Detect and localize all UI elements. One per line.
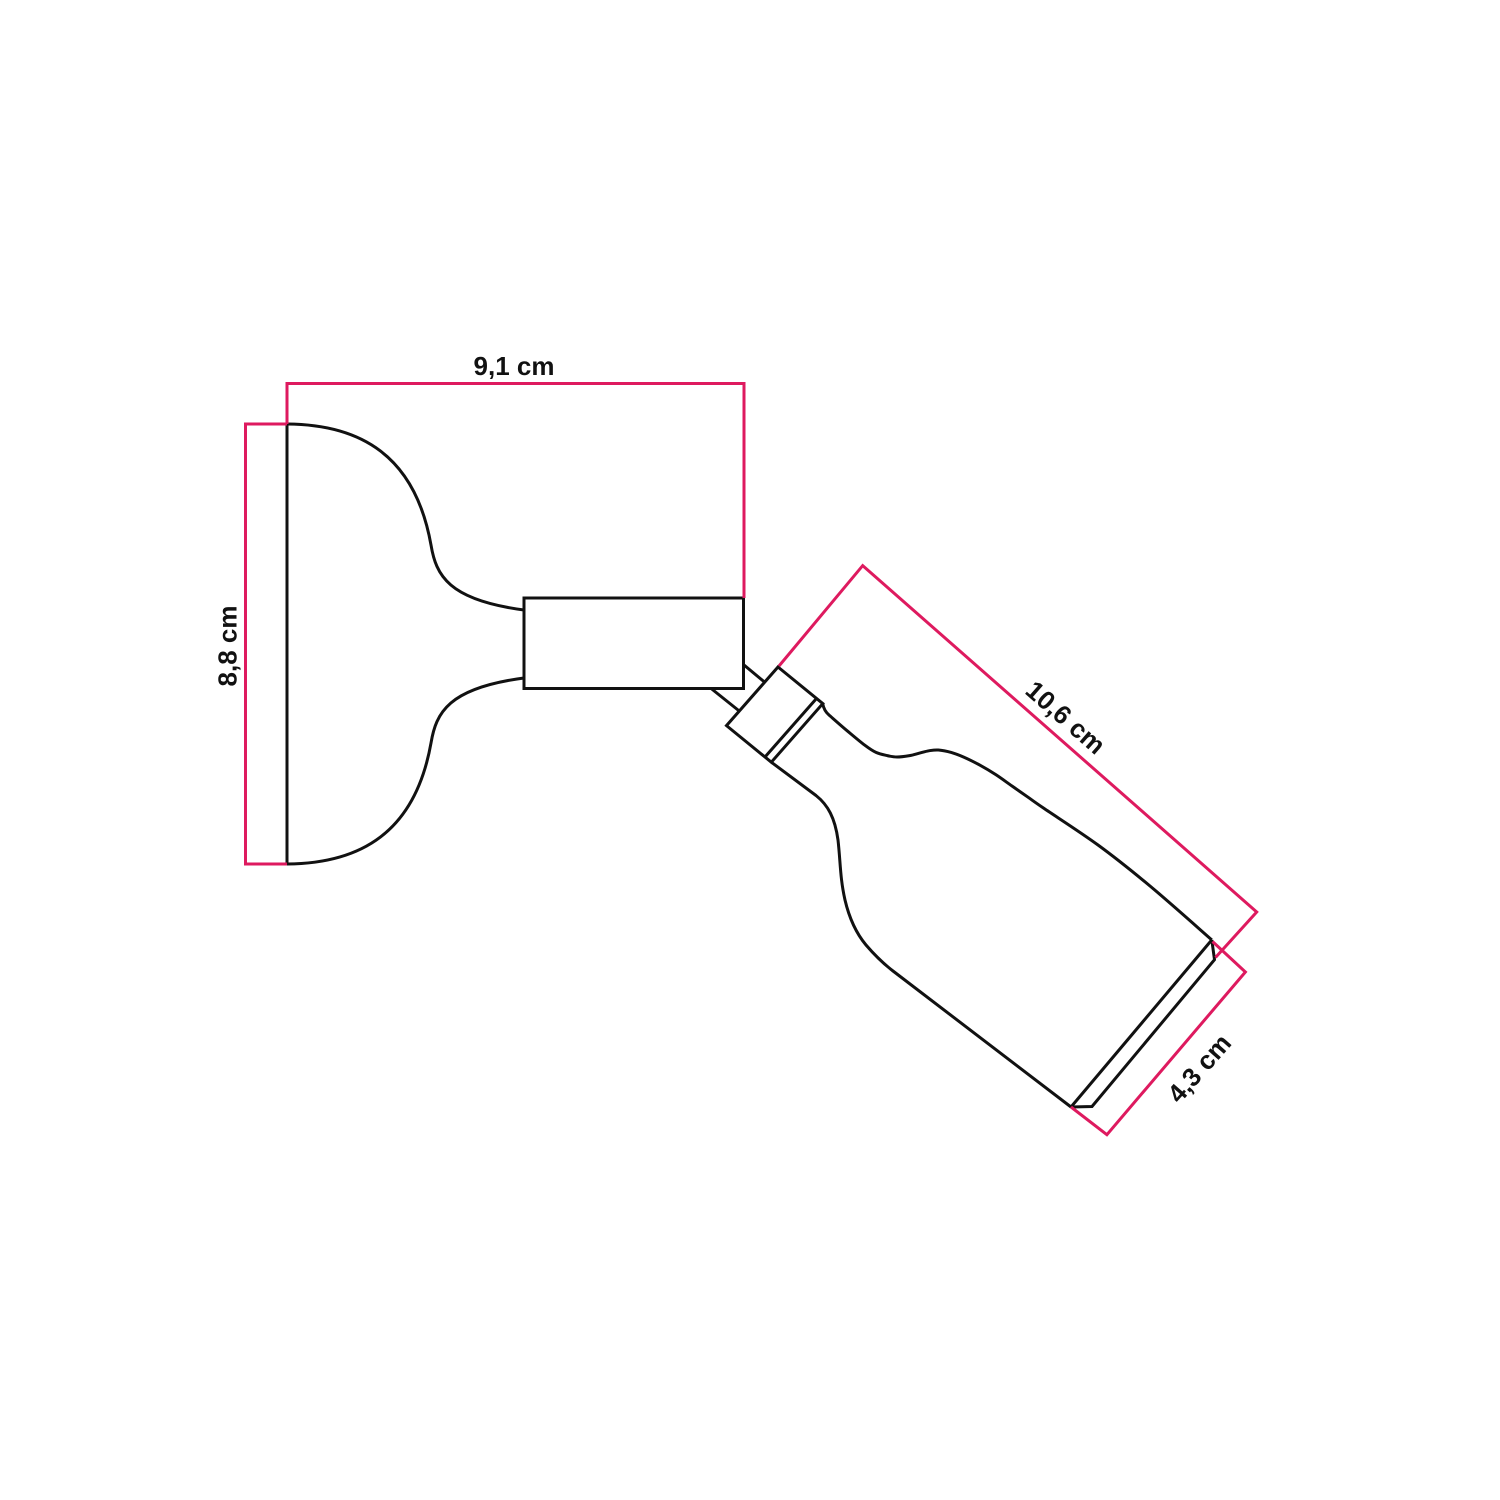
svg-text:9,1 cm: 9,1 cm [474,351,555,381]
svg-text:8,8 cm: 8,8 cm [213,606,243,687]
